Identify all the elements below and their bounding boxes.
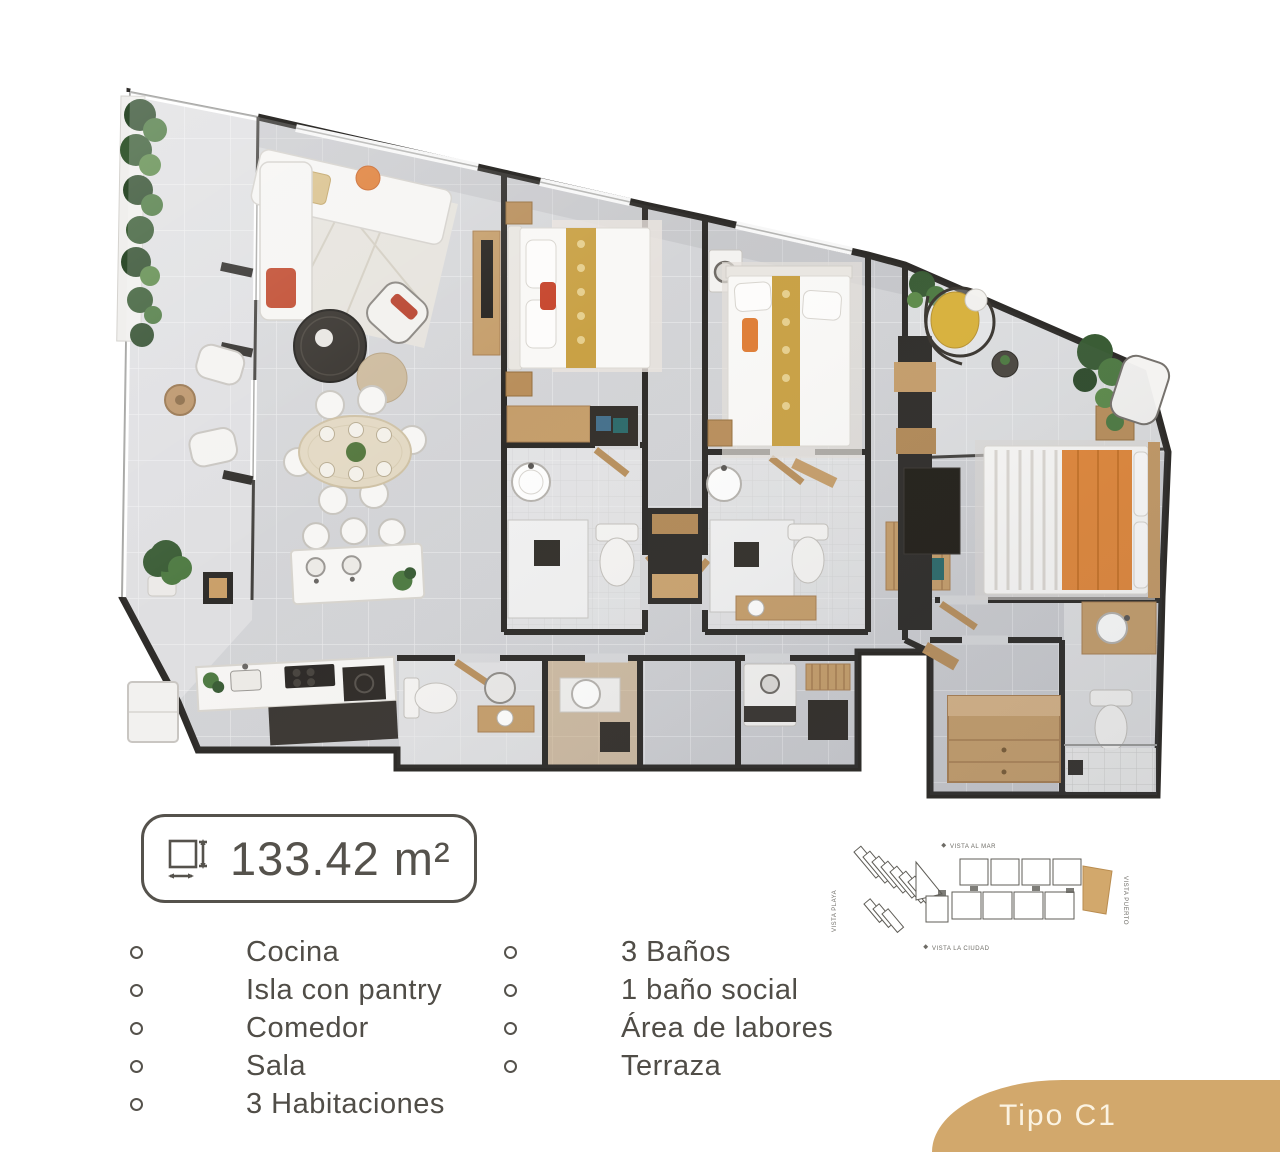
feature-item: Terraza xyxy=(492,1047,833,1085)
minimap-label-bottom: VISTA LA CIUDAD xyxy=(932,946,990,952)
brochure-page: 133.42 m² Cocina Isla con pantry Comedor… xyxy=(0,0,1280,1152)
feature-item: Área de labores xyxy=(492,1009,833,1047)
bullet-icon xyxy=(130,984,143,997)
feature-item: Isla con pantry xyxy=(118,971,445,1009)
area-value: 133.42 m² xyxy=(230,831,451,886)
bullet-icon xyxy=(504,1060,517,1073)
bullet-icon xyxy=(130,1098,143,1111)
minimap-label-right: VISTA PUERTO xyxy=(1122,876,1128,925)
feature-label: Isla con pantry xyxy=(246,974,442,1007)
minimap-label-left: VISTA PLAYA xyxy=(832,890,838,932)
bullet-icon xyxy=(130,946,143,959)
feature-label: Sala xyxy=(246,1050,306,1083)
area-measure-icon xyxy=(166,835,212,883)
highlighted-unit xyxy=(1083,866,1112,914)
area-badge: 133.42 m² xyxy=(141,814,477,903)
feature-item: 3 Habitaciones xyxy=(118,1085,445,1123)
feature-label: 1 baño social xyxy=(621,974,798,1007)
feature-label: Terraza xyxy=(621,1050,721,1083)
light-overlay xyxy=(122,92,1168,795)
bullet-icon xyxy=(504,984,517,997)
bullet-icon xyxy=(504,1022,517,1035)
bullet-icon xyxy=(504,946,517,959)
bullet-icon xyxy=(130,1022,143,1035)
feature-label: Área de labores xyxy=(621,1012,833,1045)
feature-item: Sala xyxy=(118,1047,445,1085)
feature-label: Cocina xyxy=(246,936,339,969)
feature-label: Comedor xyxy=(246,1012,369,1045)
floor-plan-render xyxy=(0,0,1280,818)
feature-item: 1 baño social xyxy=(492,971,833,1009)
feature-list-right: 3 Baños 1 baño social Área de labores Te… xyxy=(492,933,833,1085)
unit-type-label: Tipo C1 xyxy=(999,1099,1117,1133)
feature-item: Comedor xyxy=(118,1009,445,1047)
feature-item: Cocina xyxy=(118,933,445,971)
feature-item: 3 Baños xyxy=(492,933,833,971)
feature-label: 3 Baños xyxy=(621,936,731,969)
feature-label: 3 Habitaciones xyxy=(246,1088,445,1121)
unit-type-ribbon: Tipo C1 xyxy=(932,1080,1280,1152)
bullet-icon xyxy=(130,1060,143,1073)
minimap-label-top: VISTA AL MAR xyxy=(950,844,996,850)
site-plan-minimap: VISTA AL MAR VISTA LA CIUDAD VISTA PLAYA… xyxy=(820,838,1142,960)
feature-list-left: Cocina Isla con pantry Comedor Sala 3 Ha… xyxy=(118,933,445,1123)
